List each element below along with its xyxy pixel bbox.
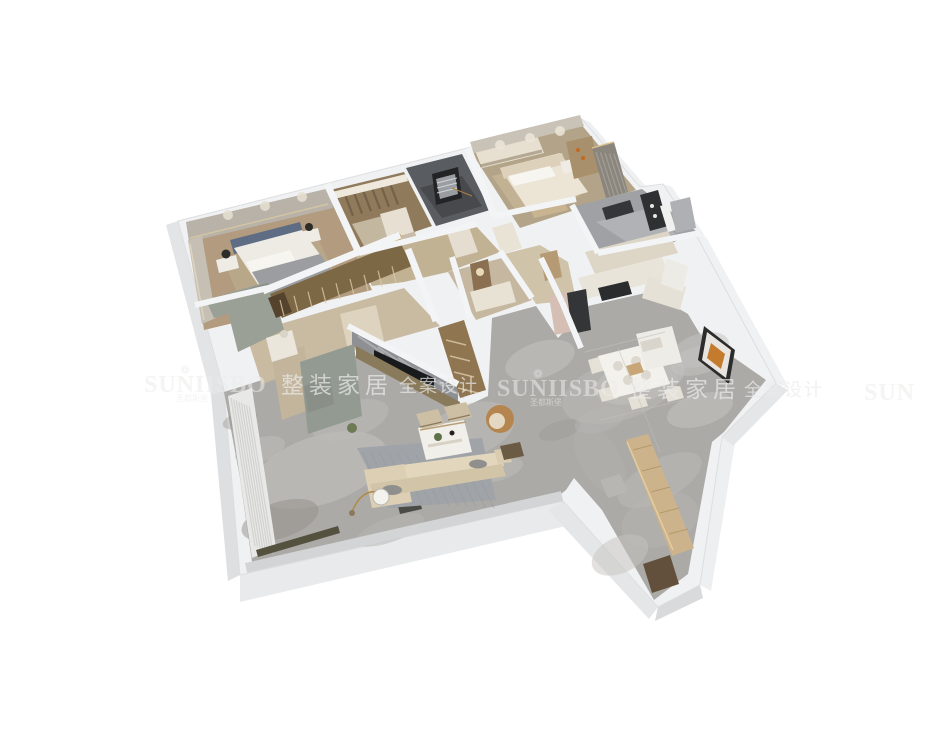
svg-text:全案设计: 全案设计	[399, 376, 479, 396]
svg-text:整装家居: 整装家居	[629, 377, 741, 402]
svg-text:SUN: SUN	[864, 380, 915, 406]
svg-text:❁: ❁	[533, 367, 543, 381]
svg-text:整装家居: 整装家居	[281, 373, 393, 398]
svg-text:❁: ❁	[180, 363, 190, 377]
svg-text:圣都斯堡: 圣都斯堡	[530, 397, 562, 407]
svg-text:圣都斯堡: 圣都斯堡	[176, 393, 208, 403]
svg-text:全案设计: 全案设计	[744, 380, 824, 400]
